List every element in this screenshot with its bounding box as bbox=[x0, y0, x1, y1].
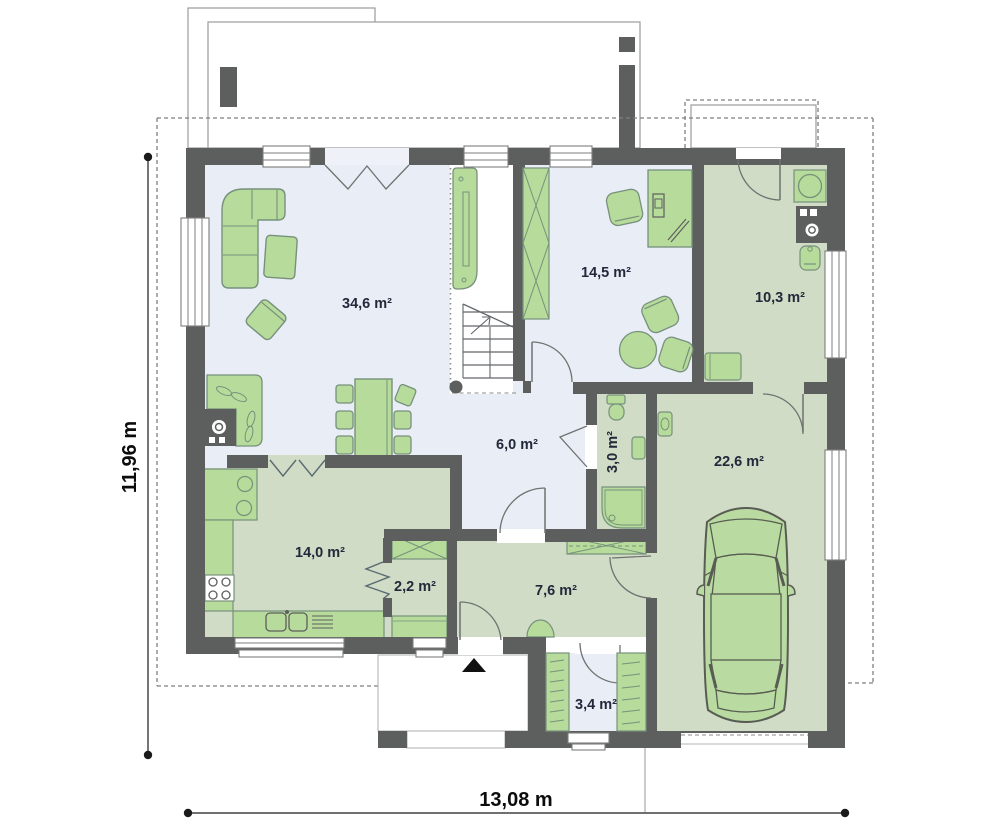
svg-text:34,6 m²: 34,6 m² bbox=[342, 296, 392, 312]
svg-text:10,3 m²: 10,3 m² bbox=[755, 290, 805, 306]
svg-text:14,0 m²: 14,0 m² bbox=[295, 545, 345, 561]
svg-text:3,4 m²: 3,4 m² bbox=[575, 697, 617, 713]
svg-text:2,2 m²: 2,2 m² bbox=[394, 579, 436, 595]
svg-text:22,6 m²: 22,6 m² bbox=[714, 454, 764, 470]
svg-text:7,6 m²: 7,6 m² bbox=[535, 583, 577, 599]
svg-text:11,96 m: 11,96 m bbox=[119, 421, 141, 493]
svg-text:14,5 m²: 14,5 m² bbox=[581, 265, 631, 281]
svg-text:13,08 m: 13,08 m bbox=[479, 789, 552, 811]
svg-text:6,0 m²: 6,0 m² bbox=[496, 437, 538, 453]
svg-text:3,0 m²: 3,0 m² bbox=[605, 431, 621, 473]
